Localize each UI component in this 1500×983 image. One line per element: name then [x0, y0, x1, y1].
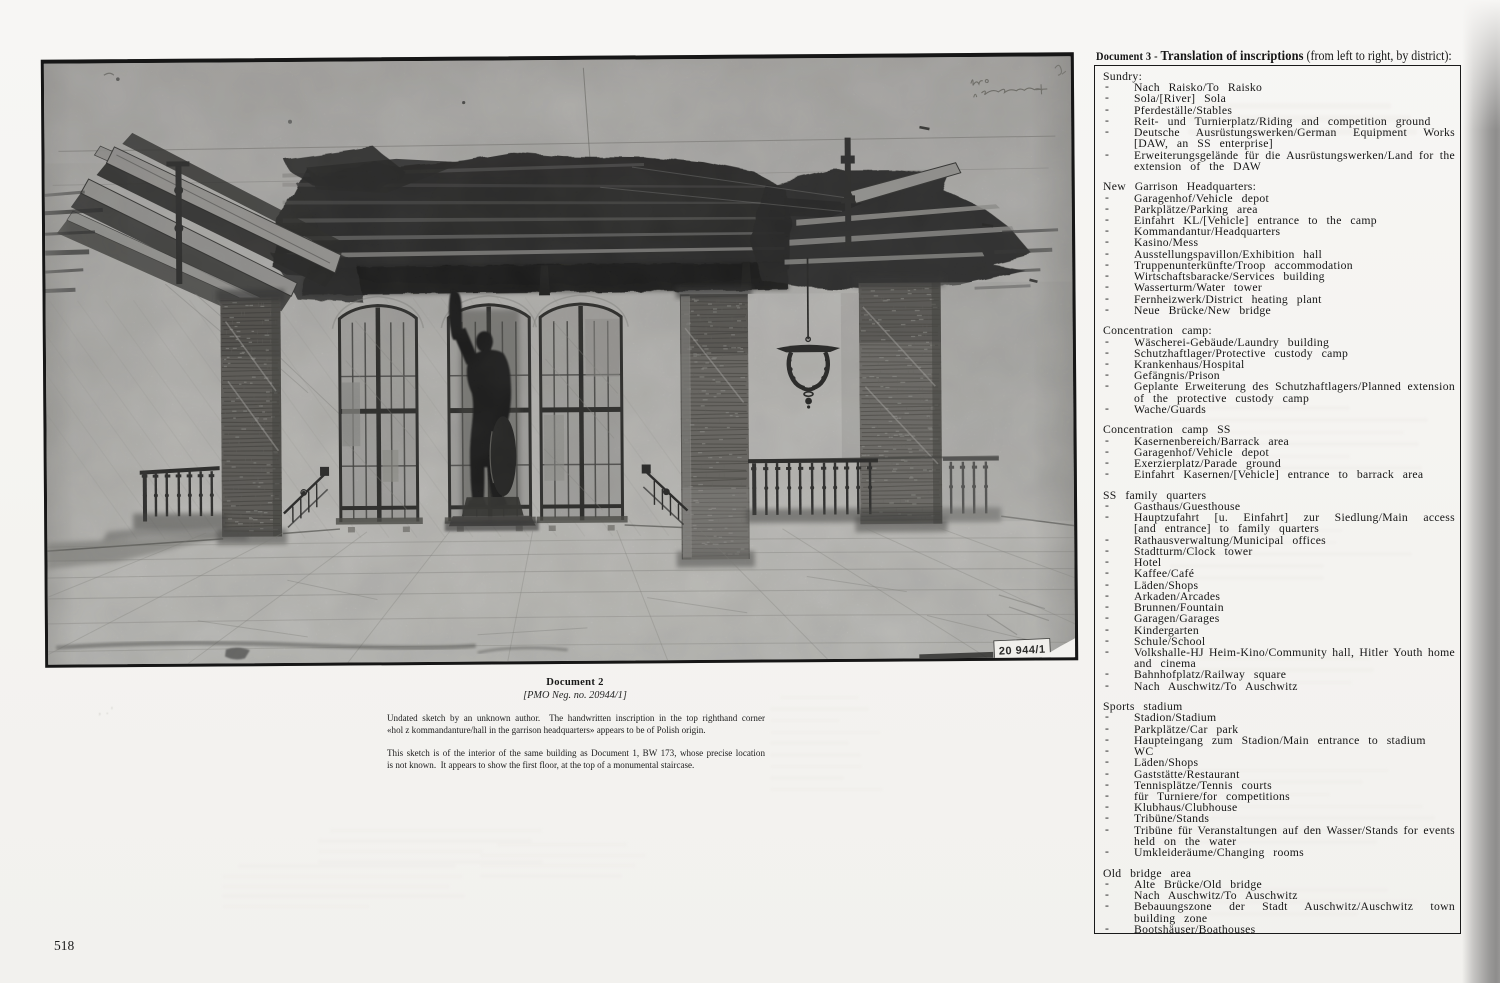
svg-text:20 944/1: 20 944/1	[999, 644, 1046, 658]
